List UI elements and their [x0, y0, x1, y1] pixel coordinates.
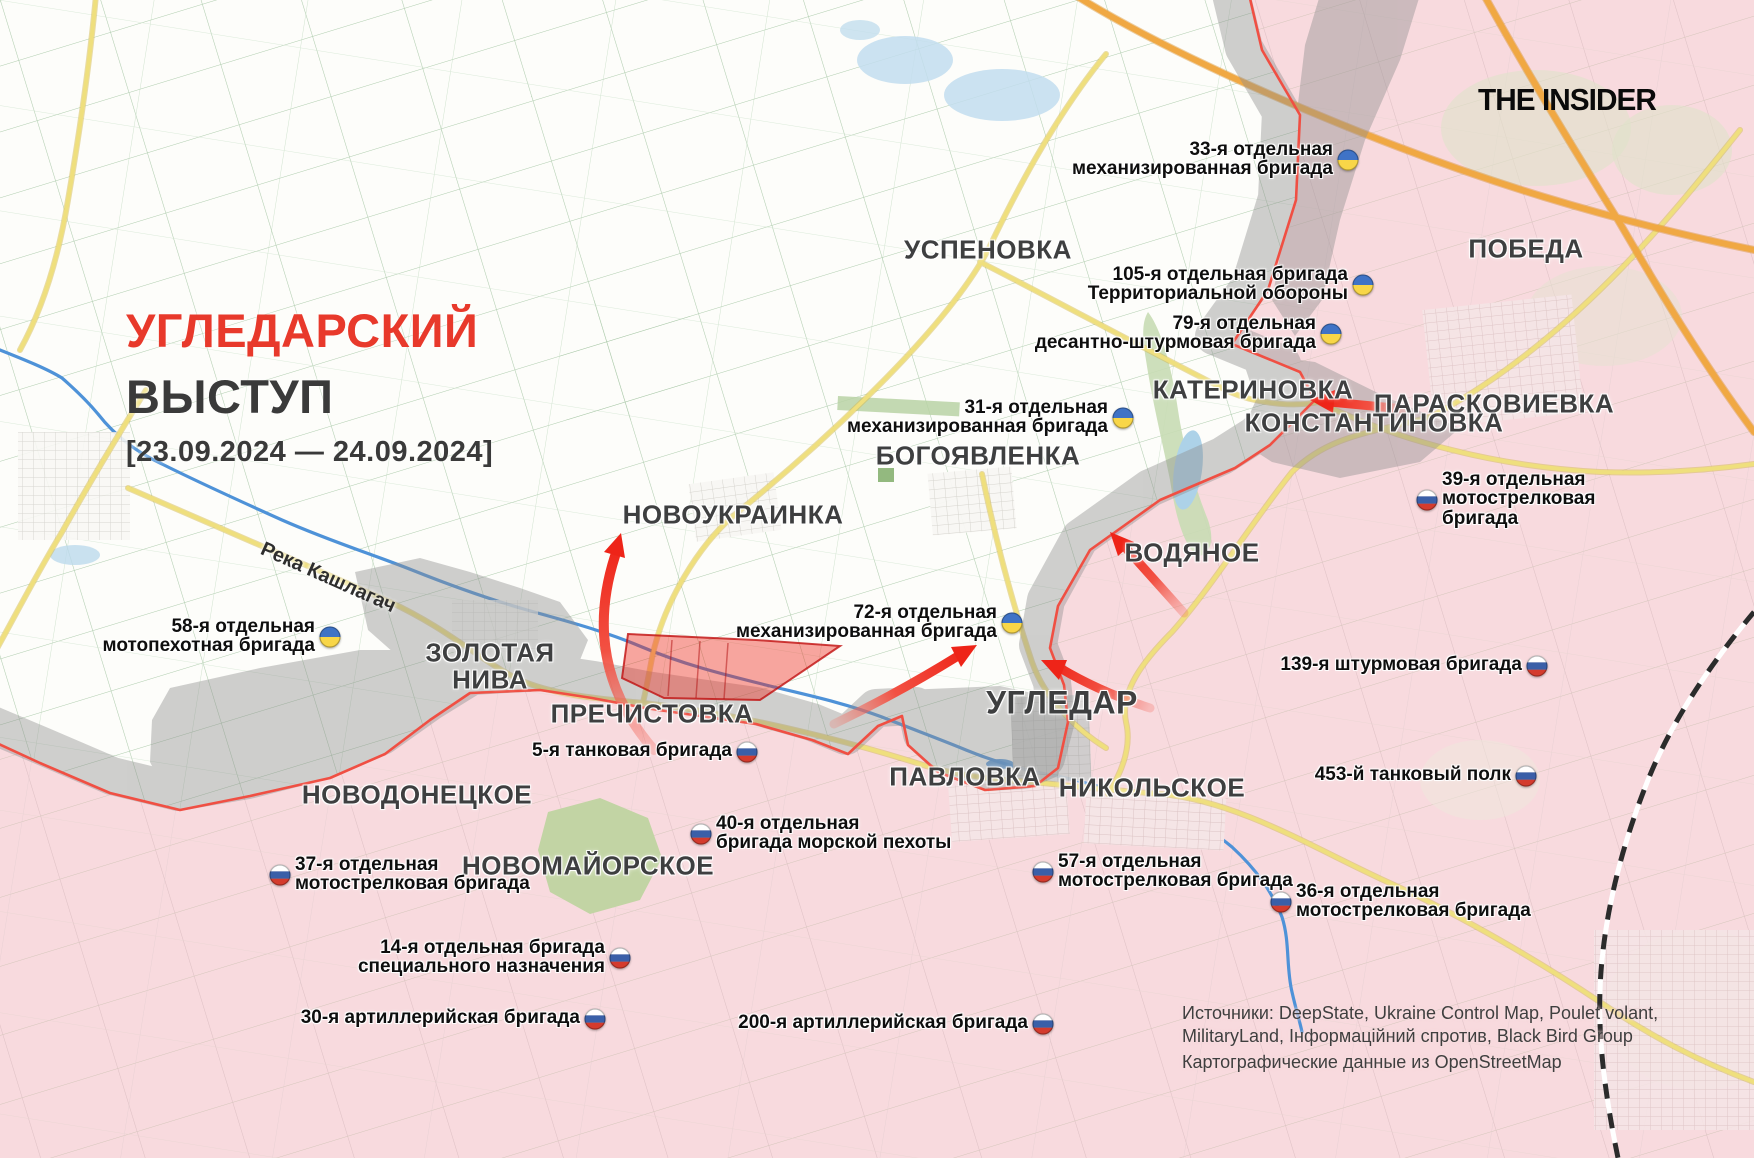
sources-line-2: MilitaryLand, Інформаційний спротив, Bla… [1182, 1025, 1658, 1048]
war-map: УГЛЕДАРСКИЙ ВЫСТУП [23.09.2024 — 24.09.2… [0, 0, 1754, 1158]
brand-logo: THE INSIDER [1478, 82, 1656, 118]
sources-credit: Источники: DeepState, Ukraine Control Ma… [1182, 1002, 1658, 1074]
date-range: [23.09.2024 — 24.09.2024] [126, 436, 493, 469]
sources-line-3: Картографические данные из OpenStreetMap [1182, 1051, 1658, 1074]
map-title-accent: УГЛЕДАРСКИЙ [126, 306, 493, 356]
map-title: ВЫСТУП [126, 372, 493, 422]
title-block: УГЛЕДАРСКИЙ ВЫСТУП [23.09.2024 — 24.09.2… [126, 306, 493, 469]
sources-line-1: Источники: DeepState, Ukraine Control Ma… [1182, 1002, 1658, 1025]
base-map [0, 0, 1754, 1158]
